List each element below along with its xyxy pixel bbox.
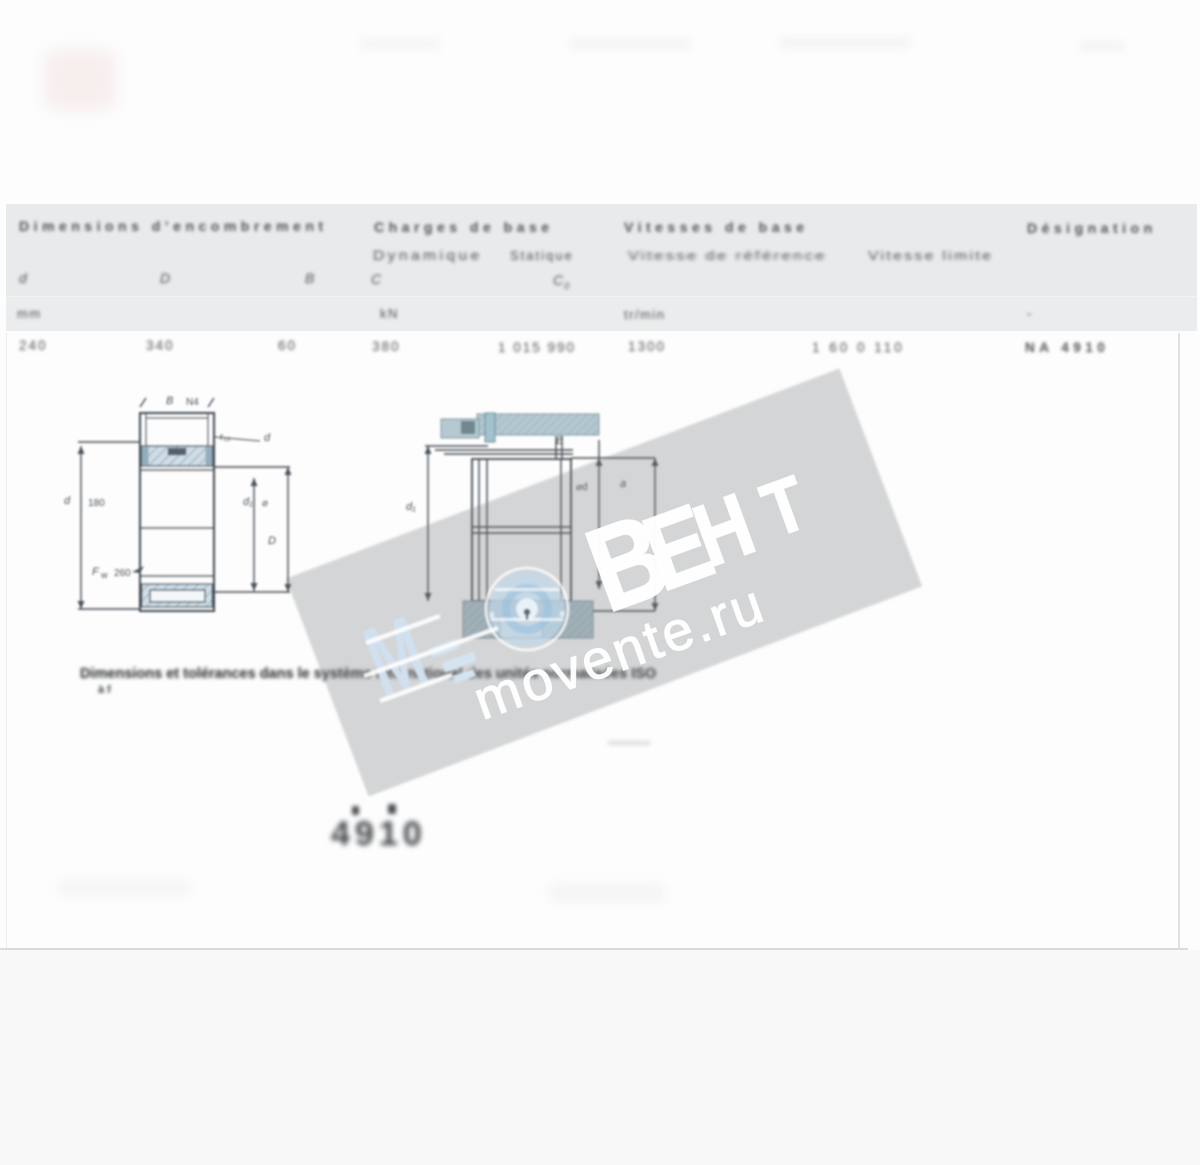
svg-text:d₁: d₁ <box>406 501 416 513</box>
svg-text:d₁: d₁ <box>243 496 253 508</box>
svg-text:M: M <box>351 594 440 719</box>
svg-text:F: F <box>92 566 100 578</box>
svg-text:260: 260 <box>114 568 131 579</box>
svg-text:N4: N4 <box>186 397 199 408</box>
svg-text:d: d <box>264 432 271 444</box>
svg-text:B: B <box>556 435 563 447</box>
svg-text:r₁₂: r₁₂ <box>220 432 231 443</box>
svg-text:d: d <box>64 495 71 507</box>
svg-text:180: 180 <box>88 498 105 509</box>
svg-text:D: D <box>268 535 276 547</box>
svg-text:w: w <box>100 570 108 580</box>
svg-text:B: B <box>166 395 173 407</box>
svg-text:⌀: ⌀ <box>262 498 268 509</box>
